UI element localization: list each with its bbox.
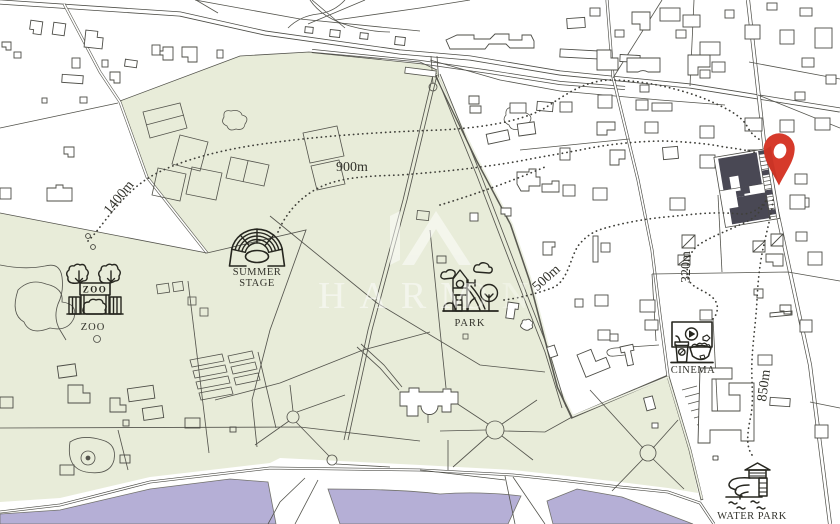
- svg-text:ZOO: ZOO: [83, 285, 108, 295]
- svg-text:PARK: PARK: [454, 318, 485, 329]
- svg-text:900m: 900m: [336, 160, 368, 175]
- svg-text:320m: 320m: [679, 251, 694, 283]
- svg-text:ON: ON: [460, 275, 543, 317]
- svg-text:ZOO: ZOO: [81, 322, 106, 333]
- svg-text:CINEMA: CINEMA: [671, 365, 715, 376]
- svg-text:STAGE: STAGE: [239, 278, 275, 289]
- svg-text:SUMMER: SUMMER: [233, 267, 282, 278]
- svg-text:WATER PARK: WATER PARK: [717, 511, 787, 522]
